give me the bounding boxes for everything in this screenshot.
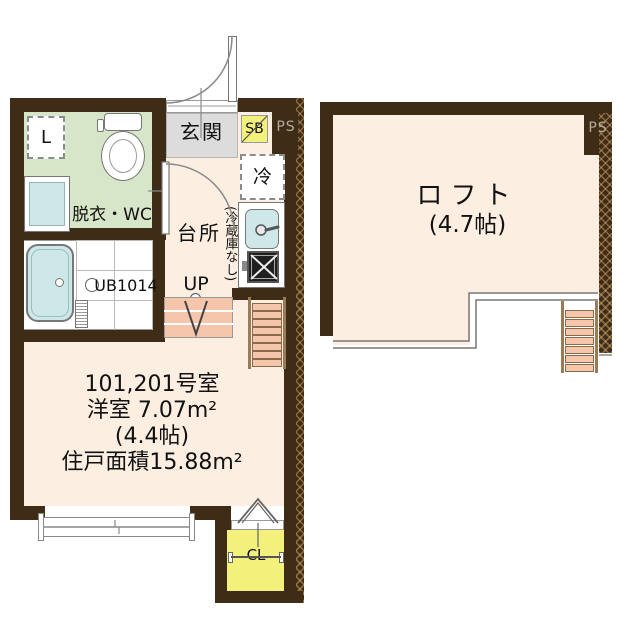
wall-bottom-mid <box>190 506 231 520</box>
ps-label: PS <box>272 119 300 135</box>
entrance-door-leaf <box>228 36 237 102</box>
ladder-rung <box>252 311 282 319</box>
ladder-rung <box>252 335 282 343</box>
entrance-door-arc <box>166 37 232 103</box>
toilet-seat-icon <box>109 139 137 173</box>
loft-wall-left <box>320 102 333 336</box>
closet-label: CL <box>240 546 272 564</box>
ladder-rung <box>565 319 594 327</box>
window <box>42 517 191 537</box>
ladder-rung <box>565 355 594 363</box>
room-area: 洋室 7.07m² <box>36 398 268 424</box>
ladder-rung <box>252 343 282 351</box>
ladder-rail <box>248 297 251 369</box>
loft-size-label: (4.7帖) <box>400 212 535 238</box>
room-number: 101,201号室 <box>36 372 268 398</box>
kitchen-sink-icon <box>245 209 279 249</box>
closet-pole-bracket <box>228 552 233 563</box>
fridge-note: (冷蔵庫なし) <box>221 192 239 296</box>
ladder-rung <box>252 327 282 335</box>
loft-wall-right-hatch <box>599 113 612 353</box>
ladder-rung <box>252 351 282 359</box>
stair-tread-line <box>164 323 233 325</box>
ladder-rail <box>283 297 286 369</box>
stove-inner-frame <box>251 255 275 279</box>
room-tatami: (4.4帖) <box>36 424 268 450</box>
entrance-label: 玄関 <box>166 122 238 142</box>
loft-label: ロフト <box>400 182 535 210</box>
stairs-steps <box>164 297 233 338</box>
wall-left <box>10 98 24 520</box>
ladder-rung <box>252 303 282 311</box>
ladder-rung <box>565 346 594 354</box>
loft-ladder <box>561 301 598 373</box>
window-end-cap <box>38 513 44 541</box>
bath-door-icon <box>75 300 88 328</box>
closet-wall-bottom <box>215 591 303 603</box>
ladder <box>248 297 286 369</box>
ladder-rung <box>565 364 594 372</box>
window-end-cap <box>189 513 195 541</box>
closet-pole-bracket <box>279 552 284 563</box>
toilet-lever-icon <box>97 119 104 132</box>
ladder-rung <box>565 310 594 318</box>
bath-label: UB1014 <box>97 277 155 294</box>
wc-room-label: 脱衣・WC <box>64 206 160 224</box>
loft-ps-label: PS <box>584 120 612 136</box>
loft-wall-top <box>320 102 612 115</box>
ladder-rung <box>565 337 594 345</box>
closet-threshold <box>231 520 284 530</box>
loft-floor-left-ext <box>333 292 470 345</box>
floor-plan-canvas: UB1014 PS 玄関 SB L 脱衣・WC 台所 (冷蔵庫なし) <box>0 0 640 640</box>
wall-top-left <box>10 98 166 112</box>
stove-knob-icon <box>242 261 247 271</box>
laundry-label: L <box>27 116 65 159</box>
wall-top-right <box>238 98 284 112</box>
ladder-rung <box>252 359 282 367</box>
washbasin-bowl-icon <box>29 182 65 226</box>
ladder-rail <box>595 301 598 373</box>
fridge-label: 冷 <box>240 154 285 200</box>
up-label: UP <box>176 274 216 294</box>
wall-right-hatch <box>296 98 304 603</box>
ladder-rung <box>252 319 282 327</box>
toilet-tank-icon <box>104 113 142 131</box>
ladder-rail <box>561 301 564 373</box>
shoe-box-label: SB <box>241 115 268 143</box>
room-info-text: 101,201号室 洋室 7.07m² (4.4帖) 住戸面積15.88m² <box>36 372 268 476</box>
unit-area: 住戸面積15.88m² <box>36 450 268 476</box>
bathtub-drain-icon <box>55 278 64 287</box>
ladder-rung <box>565 328 594 336</box>
stair-tread-line <box>164 310 233 312</box>
